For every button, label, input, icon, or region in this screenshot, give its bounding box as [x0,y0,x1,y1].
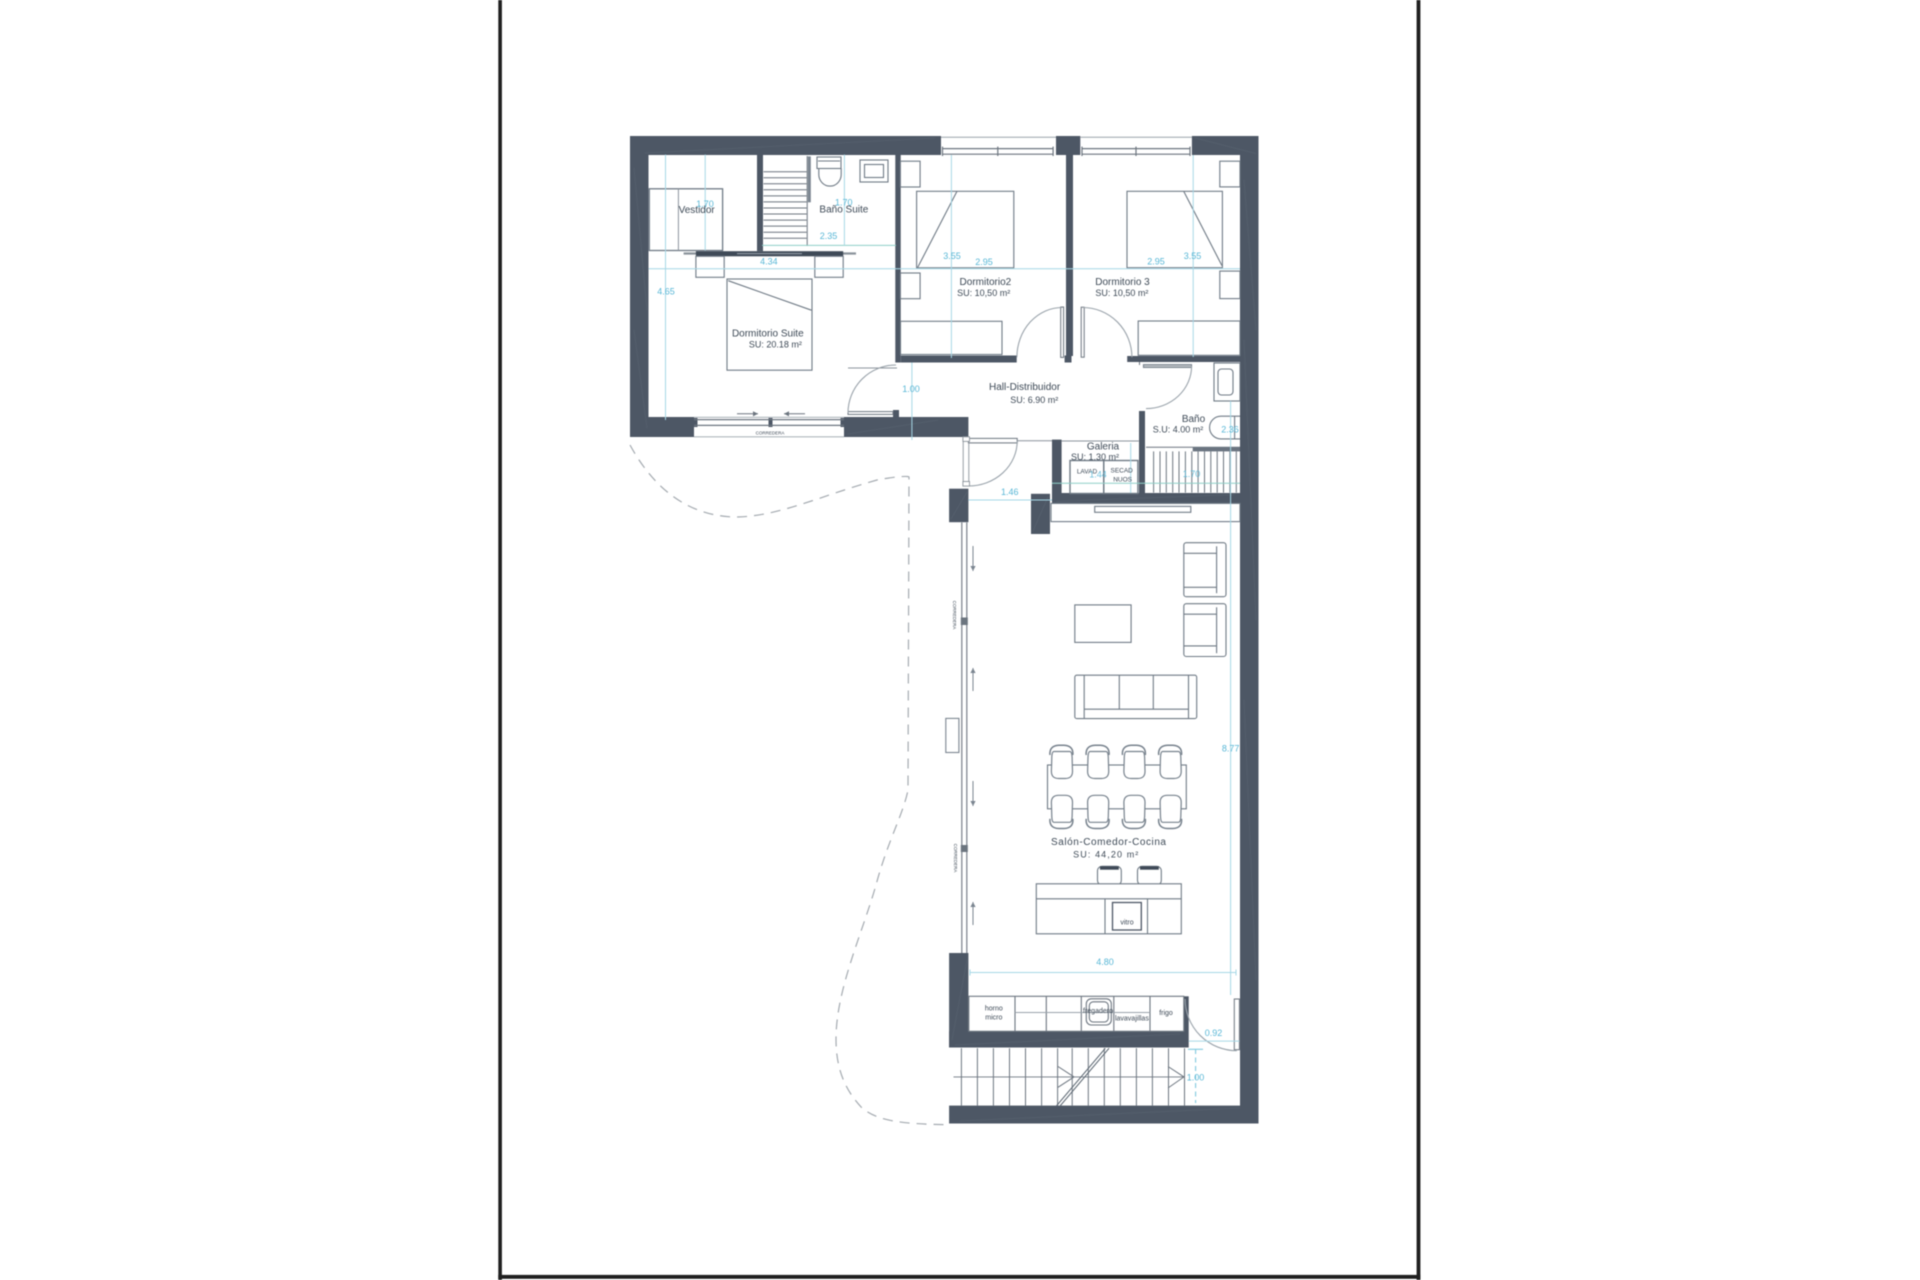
svg-text:1.00: 1.00 [902,384,920,394]
svg-text:2.95: 2.95 [1147,256,1165,266]
svg-text:1.44: 1.44 [1089,470,1107,480]
svg-text:CORREDERA: CORREDERA [756,430,785,435]
svg-text:SECAD: SECAD [1110,468,1133,475]
svg-text:Dormitorio Suite: Dormitorio Suite [732,328,804,339]
svg-text:3.55: 3.55 [943,251,961,261]
svg-text:horno: horno [985,1006,1003,1013]
svg-text:Hall-Distribuidor: Hall-Distribuidor [989,382,1061,393]
svg-text:SU: 20.18 m²: SU: 20.18 m² [749,340,802,350]
svg-text:SU: 10,50 m²: SU: 10,50 m² [1095,288,1148,298]
svg-text:CORREDERA: CORREDERA [953,844,958,873]
svg-text:2.95: 2.95 [975,257,993,267]
svg-text:S.U: 4.00 m²: S.U: 4.00 m² [1153,425,1204,435]
svg-text:fregadero: fregadero [1083,1008,1113,1015]
svg-text:Dormitorio2: Dormitorio2 [960,277,1012,288]
svg-text:SU: 44,20 m²: SU: 44,20 m² [1073,850,1139,860]
svg-text:3.55: 3.55 [1184,251,1202,261]
svg-text:2.36: 2.36 [1221,424,1239,434]
svg-text:8.77: 8.77 [1222,744,1240,754]
svg-text:1.00: 1.00 [1187,1073,1205,1083]
svg-text:frigo: frigo [1159,1010,1173,1017]
svg-text:Dormitorio 3: Dormitorio 3 [1095,277,1150,288]
svg-text:1.70: 1.70 [835,198,853,208]
svg-text:SU: 1.30 m²: SU: 1.30 m² [1071,452,1119,462]
svg-text:lavavajillas: lavavajillas [1115,1016,1149,1023]
svg-text:micro: micro [985,1014,1002,1021]
svg-text:SU: 6.90 m²: SU: 6.90 m² [1010,395,1058,405]
svg-text:SU: 10,50 m²: SU: 10,50 m² [957,288,1010,298]
svg-text:1.70: 1.70 [1183,469,1201,479]
svg-text:Baño: Baño [1182,414,1206,425]
svg-text:4.34: 4.34 [760,256,778,266]
svg-text:0.92: 0.92 [1205,1028,1223,1038]
svg-text:4.80: 4.80 [1096,957,1114,967]
svg-text:NUOS: NUOS [1113,477,1132,484]
svg-text:Galeria: Galeria [1087,442,1120,453]
svg-text:vitro: vitro [1120,920,1133,927]
svg-text:Salón-Comedor-Cocina: Salón-Comedor-Cocina [1051,837,1167,848]
svg-text:1.46: 1.46 [1001,487,1019,497]
svg-text:CORREDERA: CORREDERA [952,601,957,630]
svg-text:4.65: 4.65 [657,287,675,297]
svg-text:2.35: 2.35 [820,231,838,241]
svg-text:1.70: 1.70 [696,199,714,209]
